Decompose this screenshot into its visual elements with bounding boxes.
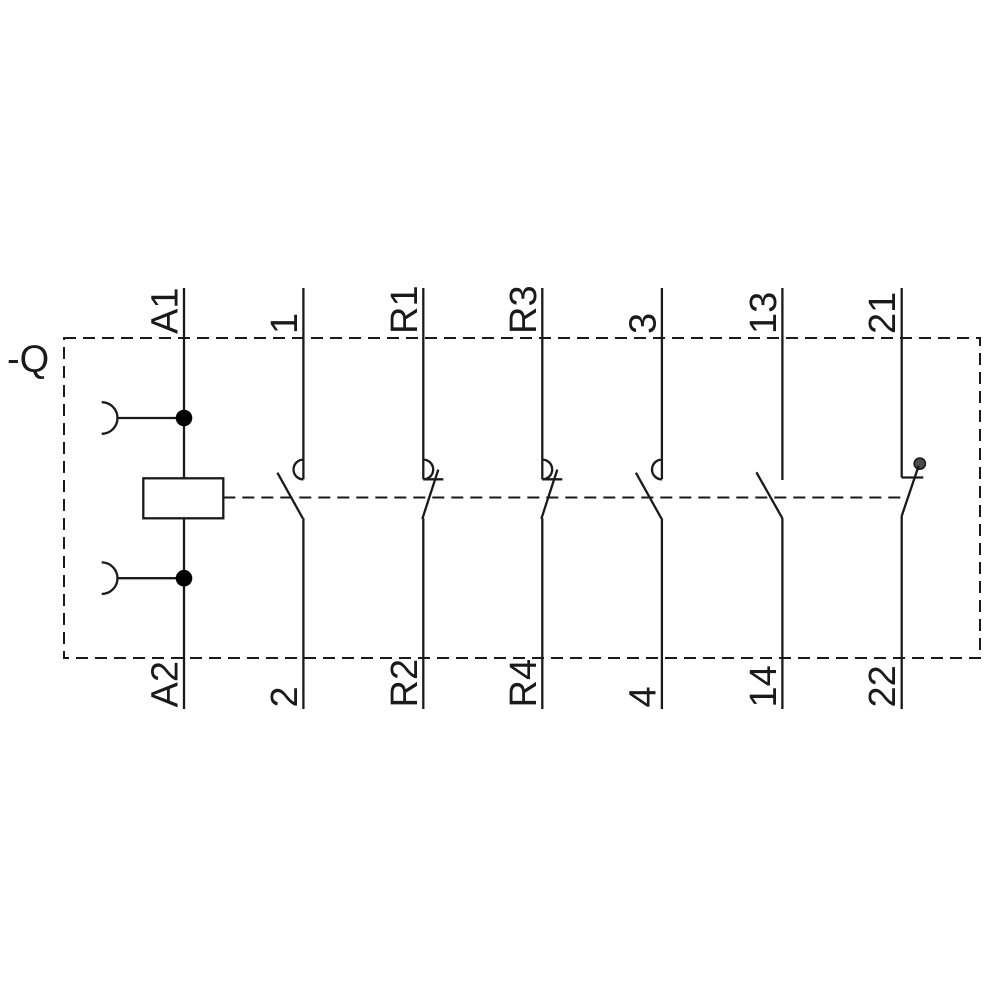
schematic-canvas: -Q A1 1 R1 R3 3 13 21 A2 2 R2 R4 4 14 22 [0,0,1000,1000]
terminal-label-top-1: 1 [264,313,306,334]
nc-contact-dot [914,458,925,469]
terminal-label-top-r3: R3 [503,285,545,334]
terminal-label-bottom-a2: A2 [145,661,187,707]
terminal-label-top-a1: A1 [145,288,187,334]
canvas-background [0,0,1000,1000]
terminal-label-bottom-r2: R2 [384,659,426,708]
terminal-label-bottom-22: 22 [862,665,904,707]
terminal-label-top-3: 3 [622,313,664,334]
terminal-label-bottom-4: 4 [622,686,664,707]
terminal-label-top-r1: R1 [384,285,426,334]
schematic-page: -Q A1 1 R1 R3 3 13 21 A2 2 R2 R4 4 14 22 [0,0,1000,1000]
terminal-label-top-13: 13 [743,292,785,334]
junction-dot-top [176,410,193,427]
terminal-label-bottom-2: 2 [264,686,306,707]
junction-dot-bottom [176,570,193,587]
terminal-label-top-21: 21 [862,292,904,334]
terminal-label-bottom-14: 14 [743,665,785,707]
terminal-label-bottom-r4: R4 [503,659,545,708]
device-label: -Q [7,339,49,381]
